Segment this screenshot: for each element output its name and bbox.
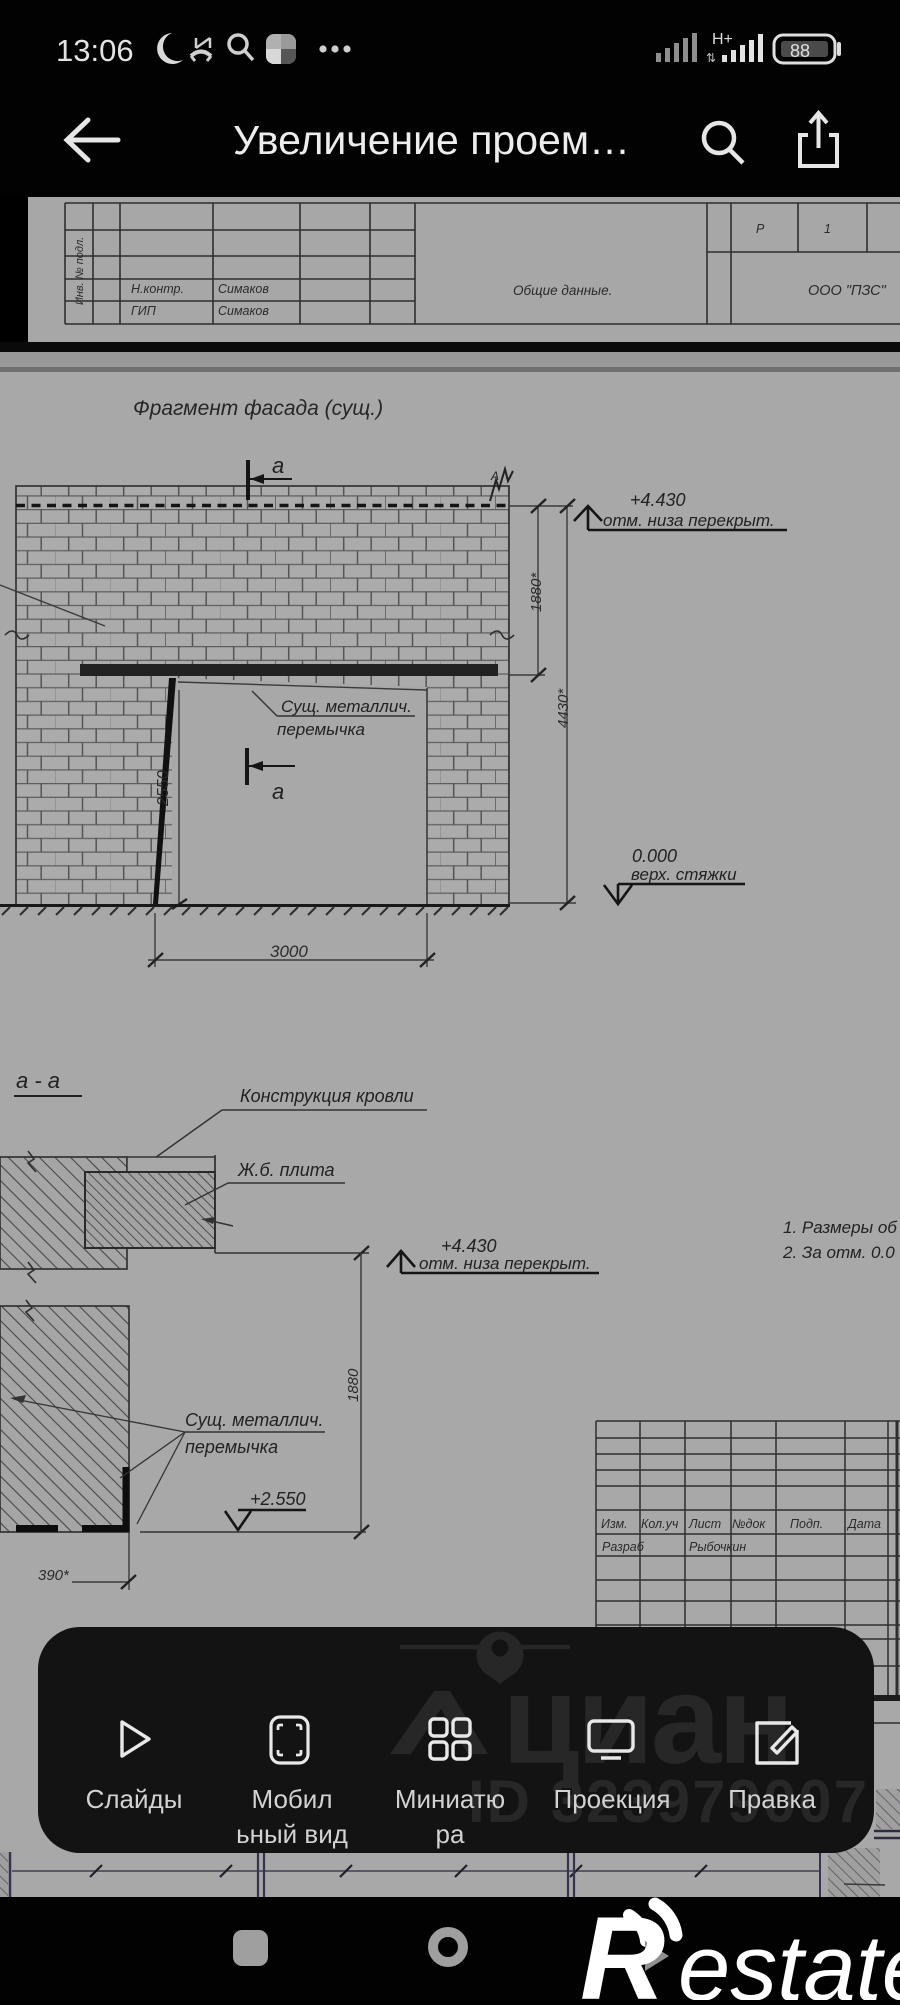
svg-text:+4.430: +4.430 <box>441 1236 497 1256</box>
svg-text:1. Размеры об: 1. Размеры об <box>783 1218 898 1237</box>
svg-text:отм. низа перекрыт.: отм. низа перекрыт. <box>603 511 775 530</box>
svg-text:верх. стяжки: верх. стяжки <box>631 865 737 884</box>
svg-text:4430*: 4430* <box>555 688 572 728</box>
svg-text:Правка: Правка <box>728 1784 816 1814</box>
svg-text:1880: 1880 <box>345 1368 362 1402</box>
svg-text:отм. низа перекрыт.: отм. низа перекрыт. <box>419 1254 591 1273</box>
svg-text:Дата: Дата <box>846 1517 881 1531</box>
svg-text:Мобил: Мобил <box>252 1784 333 1814</box>
svg-text:Инв. № подл.: Инв. № подл. <box>74 237 86 305</box>
svg-text:⇅: ⇅ <box>706 51 716 65</box>
svg-text:а - а: а - а <box>16 1068 60 1093</box>
svg-text:Ж.б. плита: Ж.б. плита <box>237 1160 335 1180</box>
svg-text:Изм.: Изм. <box>601 1517 628 1531</box>
svg-text:1880*: 1880* <box>528 572 545 612</box>
svg-text:Рыбочкин: Рыбочкин <box>689 1540 746 1554</box>
svg-text:2550: 2550 <box>155 770 172 807</box>
svg-text:а: а <box>272 453 284 478</box>
svg-text:R: R <box>580 1897 665 2000</box>
svg-text:ьный вид: ьный вид <box>236 1819 348 1849</box>
svg-text:88: 88 <box>790 41 810 61</box>
svg-text:H+: H+ <box>712 31 733 48</box>
svg-text:13:06: 13:06 <box>56 33 134 68</box>
svg-text:0.000: 0.000 <box>632 846 677 866</box>
svg-text:Кол.уч: Кол.уч <box>641 1517 679 1531</box>
svg-text:ГИП: ГИП <box>131 304 157 318</box>
svg-text:3000: 3000 <box>270 942 308 961</box>
svg-text:2. За отм. 0.0: 2. За отм. 0.0 <box>782 1243 895 1262</box>
svg-text:Сущ. металлич.: Сущ. металлич. <box>185 1410 324 1430</box>
svg-text:estate: estate <box>678 1915 900 2000</box>
svg-text:Увеличение проем…: Увеличение проем… <box>233 117 630 163</box>
svg-text:№док: №док <box>732 1517 766 1531</box>
svg-text:Н.контр.: Н.контр. <box>131 282 184 296</box>
svg-text:перемычка: перемычка <box>185 1437 278 1457</box>
svg-text:Миниатю: Миниатю <box>395 1784 505 1814</box>
svg-text:а: а <box>272 779 284 804</box>
svg-text:ООО "ПЗС": ООО "ПЗС" <box>808 283 887 299</box>
svg-text:Общие данные.: Общие данные. <box>513 283 612 298</box>
svg-text:Слайды: Слайды <box>86 1784 183 1814</box>
svg-text:Проекция: Проекция <box>554 1784 671 1814</box>
svg-text:1: 1 <box>824 222 831 236</box>
svg-text:Конструкция кровли: Конструкция кровли <box>240 1086 414 1106</box>
svg-text:перемычка: перемычка <box>277 720 365 739</box>
svg-text:Разраб: Разраб <box>602 1540 645 1554</box>
svg-text:Сущ. металлич.: Сущ. металлич. <box>281 697 412 716</box>
svg-text:+4.430: +4.430 <box>630 490 686 510</box>
svg-text:А: А <box>490 469 499 483</box>
svg-text:Р: Р <box>756 222 765 236</box>
svg-text:Фрагмент фасада (сущ.): Фрагмент фасада (сущ.) <box>133 397 383 420</box>
svg-text:Лист: Лист <box>688 1517 721 1531</box>
svg-text:Подп.: Подп. <box>790 1517 823 1531</box>
svg-text:Симаков: Симаков <box>218 282 269 296</box>
svg-text:Симаков: Симаков <box>218 304 269 318</box>
svg-text:+2.550: +2.550 <box>250 1489 306 1509</box>
svg-text:390*: 390* <box>38 1567 70 1584</box>
svg-text:ра: ра <box>436 1819 465 1849</box>
